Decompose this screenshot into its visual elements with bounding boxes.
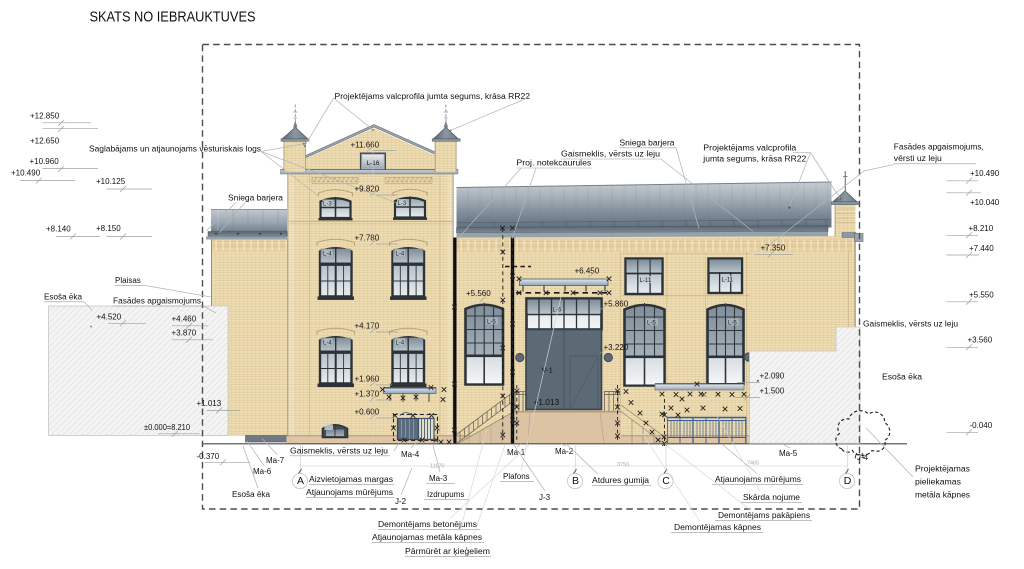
svg-text:pieliekamas: pieliekamas	[915, 477, 961, 486]
svg-text:11170: 11170	[430, 464, 444, 470]
svg-text:Atdures gumija: Atdures gumija	[592, 476, 650, 485]
svg-text:+0.600: +0.600	[355, 407, 380, 416]
svg-text:-0.040: -0.040	[970, 421, 993, 430]
svg-text:D: D	[844, 475, 852, 487]
svg-text:Sniega barjera: Sniega barjera	[620, 139, 676, 148]
svg-text:+1.500: +1.500	[760, 386, 785, 395]
svg-text:metāla kāpnes: metāla kāpnes	[915, 490, 970, 499]
svg-text:Gaismeklis, vērsts uz leju: Gaismeklis, vērsts uz leju	[863, 319, 958, 328]
svg-text:L-3: L-3	[398, 201, 407, 207]
svg-text:+3.220: +3.220	[604, 343, 629, 352]
svg-text:Demontējamas kāpnes: Demontējamas kāpnes	[674, 523, 761, 532]
svg-text:SKATS NO IEBRAUKTUVES: SKATS NO IEBRAUKTUVES	[90, 9, 256, 25]
svg-text:Skārda nojume: Skārda nojume	[743, 493, 801, 502]
svg-text:B: B	[572, 475, 579, 487]
svg-text:C: C	[662, 475, 670, 487]
svg-text:+9.820: +9.820	[355, 184, 380, 193]
svg-text:Pārmūrēt ar ķieģeliem: Pārmūrēt ar ķieģeliem	[405, 547, 490, 556]
svg-text:Plafons: Plafons	[503, 472, 530, 481]
svg-text:+1.370: +1.370	[355, 389, 380, 398]
svg-text:+7.350: +7.350	[761, 243, 786, 252]
svg-text:Ma-5: Ma-5	[779, 449, 798, 458]
svg-text:+7.440: +7.440	[969, 244, 994, 253]
svg-text:+10.490: +10.490	[11, 169, 41, 178]
svg-text:Projektējams valcprofila: Projektējams valcprofila	[703, 144, 797, 153]
svg-text:Ma-3: Ma-3	[429, 474, 448, 483]
svg-text:Projektējamas: Projektējamas	[915, 464, 970, 473]
svg-text:L-5: L-5	[487, 320, 496, 326]
svg-text:jumta segums, krāsa RR22: jumta segums, krāsa RR22	[702, 155, 807, 164]
svg-text:J-2: J-2	[395, 497, 407, 506]
svg-text:Atjaunojamas metāla kāpnes: Atjaunojamas metāla kāpnes	[372, 533, 482, 542]
svg-text:-0.370: -0.370	[197, 452, 220, 461]
svg-text:+5.560: +5.560	[466, 289, 491, 298]
svg-text:L-4: L-4	[396, 251, 405, 257]
svg-text:L-5: L-5	[647, 321, 656, 327]
svg-text:7465: 7465	[747, 461, 759, 467]
svg-text:+4.460: +4.460	[172, 314, 197, 323]
svg-text:L-4: L-4	[323, 340, 332, 346]
svg-text:+12.850: +12.850	[30, 112, 60, 121]
svg-text:Fasādes apgaismojums: Fasādes apgaismojums	[113, 297, 201, 306]
svg-text:Atjaunojams mūrējums: Atjaunojams mūrējums	[306, 488, 393, 497]
svg-text:+5.860: +5.860	[604, 300, 629, 309]
svg-text:+4.170: +4.170	[355, 321, 380, 330]
svg-text:3750: 3750	[617, 462, 629, 468]
svg-text:Ma-4: Ma-4	[401, 450, 420, 459]
svg-text:J-4: J-4	[857, 453, 869, 462]
svg-text:Aizvietojamas margas: Aizvietojamas margas	[309, 475, 393, 484]
svg-text:+6.450: +6.450	[575, 266, 600, 275]
svg-text:+2.090: +2.090	[760, 371, 785, 380]
svg-text:L-3: L-3	[323, 201, 332, 207]
svg-text:+1.013: +1.013	[197, 399, 222, 408]
svg-text:+11.660: +11.660	[351, 140, 380, 149]
svg-text:Ma-6: Ma-6	[253, 467, 272, 476]
svg-text:Proj. notekcaurules: Proj. notekcaurules	[516, 159, 591, 168]
svg-text:L-11: L-11	[722, 278, 734, 284]
svg-text:+5.550: +5.550	[969, 291, 994, 300]
svg-text:+10.960: +10.960	[30, 157, 60, 166]
svg-text:L-4: L-4	[323, 251, 332, 257]
svg-text:Plaisas: Plaisas	[115, 276, 141, 285]
svg-text:+12.650: +12.650	[30, 137, 60, 146]
svg-text:Ma-7: Ma-7	[266, 456, 285, 465]
svg-text:+8.140: +8.140	[46, 225, 71, 234]
svg-text:Esoša ēka: Esoša ēka	[44, 293, 83, 302]
svg-text:Sniega barjera: Sniega barjera	[228, 193, 284, 202]
svg-text:+8.210: +8.210	[969, 224, 994, 233]
svg-text:+7.780: +7.780	[355, 233, 380, 242]
svg-text:Gaismeklis, vērsts uz leju: Gaismeklis, vērsts uz leju	[290, 446, 388, 455]
svg-text:Fasādes apgaismojums,: Fasādes apgaismojums,	[894, 143, 984, 152]
svg-text:L-11: L-11	[640, 278, 652, 284]
svg-text:A: A	[297, 475, 304, 487]
svg-text:Gaismeklis, vērsts uz leju: Gaismeklis, vērsts uz leju	[561, 150, 660, 159]
svg-text:+10.490: +10.490	[970, 169, 1000, 178]
svg-text:+4.520: +4.520	[97, 312, 122, 321]
svg-text:+3.560: +3.560	[968, 336, 993, 345]
svg-text:Saglabājams un atjaunojams vēs: Saglabājams un atjaunojams vēsturiskais …	[89, 145, 261, 154]
svg-text:J-3: J-3	[539, 493, 551, 502]
svg-text:vērsti uz leju: vērsti uz leju	[894, 154, 942, 163]
svg-text:L-5: L-5	[728, 321, 737, 327]
svg-text:L-4: L-4	[396, 340, 405, 346]
svg-text:Esoša ēka: Esoša ēka	[882, 372, 923, 381]
svg-text:Projektējams valcprofila jumta: Projektējams valcprofila jumta segums, k…	[335, 92, 531, 101]
svg-text:Demontējams pakāpiens: Demontējams pakāpiens	[718, 511, 810, 520]
svg-text:Esoša ēka: Esoša ēka	[232, 490, 271, 499]
svg-text:+3.870: +3.870	[172, 328, 197, 337]
svg-text:+1.960: +1.960	[355, 374, 380, 383]
svg-text:+8.150: +8.150	[96, 224, 121, 233]
svg-text:Atjaunojams mūrējums: Atjaunojams mūrējums	[715, 475, 801, 484]
svg-text:Izdrupums: Izdrupums	[427, 490, 464, 499]
svg-text:+10.040: +10.040	[970, 198, 1000, 207]
svg-text:+10.125: +10.125	[96, 177, 126, 186]
svg-text:±0.000=8.210: ±0.000=8.210	[144, 423, 191, 432]
